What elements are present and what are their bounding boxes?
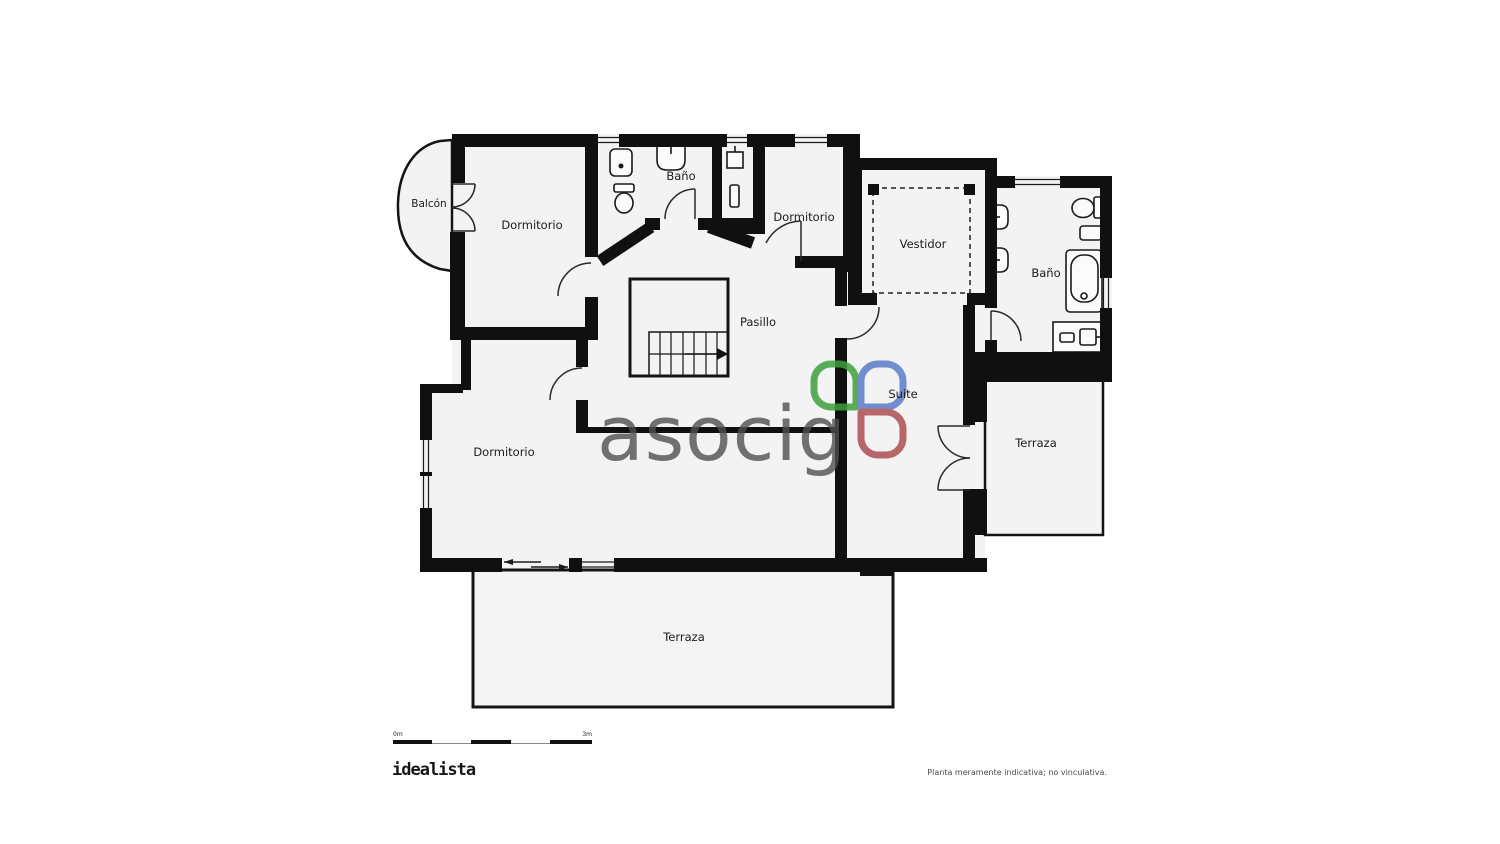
room-label-vestidor: Vestidor (900, 237, 947, 251)
room-label-dormitorio-top-right: Dormitorio (773, 210, 834, 224)
toilet-icon (1072, 199, 1094, 218)
toilet-tank-icon (614, 184, 634, 192)
room-label-bano-top: Baño (666, 169, 695, 183)
vanity-sink-icon (1080, 329, 1096, 345)
bidet-icon (1080, 226, 1102, 240)
water-heater-icon (727, 152, 743, 168)
idealista-logo: idealista (392, 760, 475, 780)
sink-icon (610, 149, 632, 176)
room-label-dormitorio-left: Dormitorio (473, 445, 534, 459)
room-label-suite: Suite (888, 387, 917, 401)
disclaimer-text: Planta meramente indicativa; no vinculat… (927, 768, 1107, 777)
scale-bar-start-label: 0m (393, 731, 403, 738)
radiator-icon (730, 185, 739, 207)
room-label-terraza-right: Terraza (1014, 436, 1057, 450)
room-label-dormitorio-top-left: Dormitorio (501, 218, 562, 232)
floorplan-svg: asocig Balcón Dormitorio Baño Dormitorio… (0, 0, 1500, 844)
scale-bar: 0m 3m (393, 731, 592, 747)
room-label-pasillo: Pasillo (740, 315, 776, 329)
room-label-bano-right: Baño (1031, 266, 1060, 280)
watermark-text: asocig (597, 389, 847, 478)
floorplan-page: asocig Balcón Dormitorio Baño Dormitorio… (0, 0, 1500, 844)
scale-bar-end-label: 3m (582, 731, 592, 738)
toilet-icon (615, 193, 633, 213)
room-label-balcon: Balcón (411, 198, 446, 210)
terraza-right-floor (985, 380, 1103, 535)
room-label-terraza-bottom: Terraza (662, 630, 705, 644)
